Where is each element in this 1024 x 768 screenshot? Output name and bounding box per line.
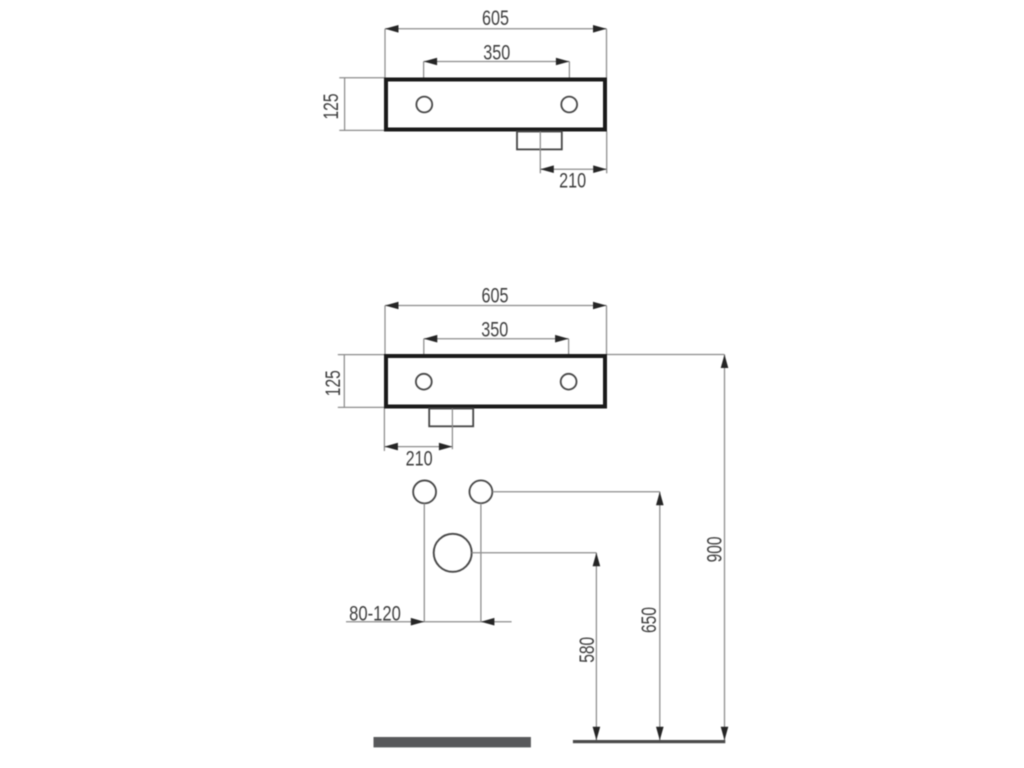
svg-text:210: 210 [406,446,433,470]
svg-text:125: 125 [319,93,343,119]
svg-text:350: 350 [481,318,508,342]
svg-text:900: 900 [703,536,727,562]
svg-text:125: 125 [321,370,345,396]
svg-text:350: 350 [483,40,510,64]
svg-text:580: 580 [575,637,599,663]
svg-text:605: 605 [482,6,509,30]
svg-text:210: 210 [559,168,586,192]
svg-text:650: 650 [637,607,661,633]
svg-text:80-120: 80-120 [349,602,401,626]
svg-text:605: 605 [482,284,509,308]
